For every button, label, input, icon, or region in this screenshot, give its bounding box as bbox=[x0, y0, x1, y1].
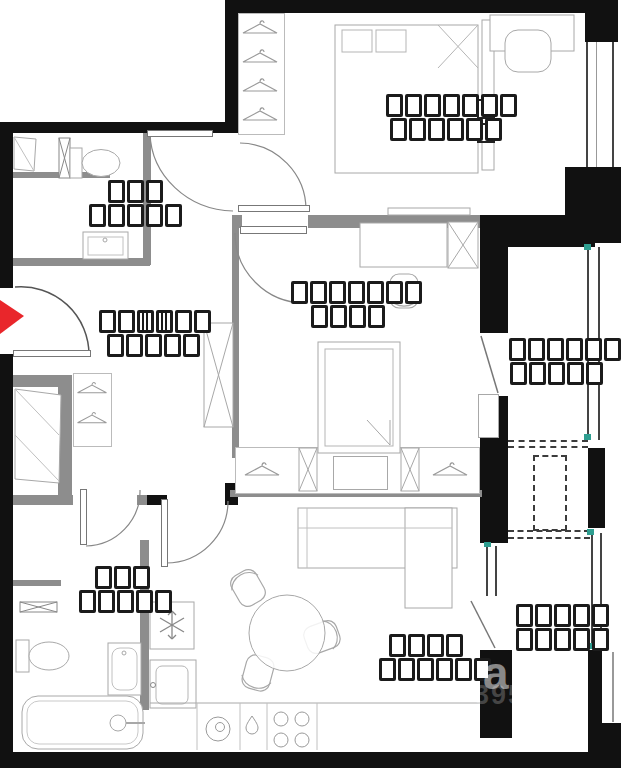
toilet-cistern bbox=[70, 148, 82, 178]
label-box-glyph bbox=[310, 281, 327, 304]
door-leaf-bathroom2 bbox=[80, 489, 87, 545]
label-box-glyph bbox=[194, 310, 211, 333]
label-box-glyph bbox=[79, 590, 96, 613]
pouf bbox=[505, 30, 551, 72]
hanger-icon bbox=[75, 410, 115, 430]
door-arc-bathroom2 bbox=[85, 489, 143, 549]
door-arc-hall-nook bbox=[238, 141, 308, 213]
label-box-glyph bbox=[427, 634, 444, 657]
window-living-loggia bbox=[486, 546, 497, 596]
label-box-glyph bbox=[368, 305, 385, 328]
washing-machine-drum-icon bbox=[206, 717, 230, 741]
label-box-glyph bbox=[585, 338, 602, 361]
window-tick-2 bbox=[584, 434, 591, 440]
label-box-glyph bbox=[485, 118, 502, 141]
label-box-glyph bbox=[466, 118, 483, 141]
partition-bath2-inner bbox=[13, 580, 61, 586]
label-box-glyph bbox=[417, 658, 434, 681]
room-label-bathroom-bottom bbox=[78, 566, 166, 614]
label-box-glyph bbox=[146, 204, 163, 227]
label-box-glyph bbox=[573, 604, 590, 627]
label-box-glyph bbox=[107, 334, 124, 357]
nightstand bbox=[333, 456, 388, 490]
window-tick-3 bbox=[587, 529, 594, 535]
label-box-glyph bbox=[118, 310, 135, 333]
window-tick-5 bbox=[484, 542, 491, 547]
label-box-glyph bbox=[133, 566, 150, 589]
label-box-glyph bbox=[95, 566, 112, 589]
hanger-icon bbox=[75, 380, 115, 400]
toilet-cistern bbox=[16, 640, 29, 672]
label-box-glyph bbox=[348, 281, 365, 304]
label-box-glyph bbox=[405, 281, 422, 304]
slab-edge-line bbox=[612, 652, 614, 722]
closet-xbox bbox=[400, 447, 420, 492]
label-box-glyph bbox=[516, 628, 533, 651]
hanger-icon bbox=[242, 460, 284, 480]
loggia-divider-dashed bbox=[508, 530, 590, 532]
faucet-drop-icon bbox=[246, 716, 258, 734]
sofa bbox=[295, 505, 460, 610]
pillow bbox=[376, 30, 406, 52]
label-box-glyph bbox=[329, 281, 346, 304]
label-box-glyph bbox=[554, 604, 571, 627]
label-box-glyph bbox=[136, 590, 153, 613]
wall-bottom-right-block bbox=[588, 723, 621, 753]
label-box-glyph bbox=[509, 338, 526, 361]
label-box-glyph bbox=[108, 204, 125, 227]
door-leaf-hall-nook bbox=[238, 205, 310, 212]
loggia-divider-dashed bbox=[508, 537, 590, 539]
label-box-glyph bbox=[127, 204, 144, 227]
toilet-bowl bbox=[29, 642, 69, 670]
room-label-bedroom-mid bbox=[290, 281, 405, 329]
stove-burners-icon bbox=[274, 712, 309, 747]
door-leaf-wc-top bbox=[147, 130, 213, 137]
niche-mirror-doors bbox=[13, 383, 75, 491]
bath-faucet bbox=[110, 715, 126, 731]
label-box-glyph bbox=[175, 310, 192, 333]
label-box-glyph bbox=[311, 305, 328, 328]
wall-left-upper bbox=[0, 122, 13, 288]
label-box-glyph bbox=[114, 566, 131, 589]
tv bbox=[388, 208, 470, 215]
pillow bbox=[342, 30, 372, 52]
window-tick-1 bbox=[584, 244, 591, 250]
room-label-kitchen-living bbox=[378, 634, 474, 682]
closet-hangers bbox=[240, 16, 282, 132]
bedroom2-furniture bbox=[315, 215, 485, 460]
door-leaf-entry bbox=[13, 350, 91, 357]
label-box-glyph bbox=[566, 338, 583, 361]
label-box-glyph bbox=[183, 334, 200, 357]
label-box-glyph bbox=[89, 204, 106, 227]
label-box-glyph bbox=[529, 362, 546, 385]
label-box-glyph bbox=[127, 180, 144, 203]
label-box-glyph bbox=[108, 180, 125, 203]
label-box-glyph bbox=[386, 94, 403, 117]
label-box-glyph bbox=[573, 628, 590, 651]
floor-plan: а 395 bbox=[0, 0, 621, 768]
label-box-glyph bbox=[436, 658, 453, 681]
loggia-storage-dashed bbox=[533, 455, 567, 531]
label-box-glyph bbox=[500, 94, 517, 117]
label-box-glyph bbox=[528, 338, 545, 361]
label-box-glyph bbox=[510, 362, 527, 385]
toilet-bowl bbox=[82, 150, 120, 177]
label-box-glyph bbox=[481, 94, 498, 117]
label-box-glyph bbox=[428, 118, 445, 141]
label-box-glyph bbox=[389, 634, 406, 657]
label-box-glyph bbox=[592, 628, 609, 651]
label-box-glyph bbox=[408, 634, 425, 657]
room-label-wc-top bbox=[88, 180, 183, 228]
label-box-glyph bbox=[592, 604, 609, 627]
label-box-glyph bbox=[98, 590, 115, 613]
label-box-glyph bbox=[443, 94, 460, 117]
label-box-glyph bbox=[554, 628, 571, 651]
loggia-shelf bbox=[478, 394, 499, 438]
label-box-glyph bbox=[386, 281, 403, 304]
label-box-glyph bbox=[548, 362, 565, 385]
label-box-glyph bbox=[567, 362, 584, 385]
label-box-glyph bbox=[535, 628, 552, 651]
label-box-glyph bbox=[156, 310, 173, 333]
watermark-digits: 395 bbox=[474, 680, 525, 711]
room-label-bedroom-top bbox=[385, 94, 507, 142]
label-box-glyph bbox=[330, 305, 347, 328]
label-box-glyph bbox=[455, 658, 472, 681]
label-box-glyph bbox=[409, 118, 426, 141]
room-label-loggia-top bbox=[508, 338, 604, 386]
label-box-glyph bbox=[547, 338, 564, 361]
label-box-glyph bbox=[586, 362, 603, 385]
label-box-glyph bbox=[137, 310, 154, 333]
entry-arrow-icon bbox=[0, 298, 28, 338]
wall-top-left-jog-v bbox=[225, 0, 238, 133]
closet-xbox bbox=[298, 447, 318, 492]
label-box-glyph bbox=[516, 604, 533, 627]
partition-bath2-top bbox=[13, 495, 73, 505]
label-box-glyph bbox=[424, 94, 441, 117]
label-box-glyph bbox=[390, 118, 407, 141]
loggia-divider-dashed bbox=[508, 446, 588, 448]
room-label-hallway bbox=[98, 310, 208, 358]
bathroom2-fixtures bbox=[13, 595, 148, 755]
label-box-glyph bbox=[145, 334, 162, 357]
label-box-glyph bbox=[604, 338, 621, 361]
label-box-glyph bbox=[146, 180, 163, 203]
label-box-glyph bbox=[117, 590, 134, 613]
hanger-icon bbox=[430, 460, 472, 480]
label-box-glyph bbox=[99, 310, 116, 333]
label-box-glyph bbox=[447, 118, 464, 141]
window-bedroom1-mullion bbox=[596, 42, 597, 167]
label-box-glyph bbox=[398, 658, 415, 681]
label-box-glyph bbox=[535, 604, 552, 627]
label-box-glyph bbox=[155, 590, 172, 613]
label-box-glyph bbox=[349, 305, 366, 328]
wall-loggia-pillar bbox=[588, 448, 605, 528]
label-box-glyph bbox=[367, 281, 384, 304]
label-box-glyph bbox=[405, 94, 422, 117]
label-box-glyph bbox=[462, 94, 479, 117]
room-label-loggia-bottom bbox=[514, 604, 610, 652]
label-box-glyph bbox=[291, 281, 308, 304]
door-leaf-bedroom2 bbox=[240, 226, 307, 234]
wall-left-lower bbox=[0, 354, 13, 768]
label-box-glyph bbox=[164, 334, 181, 357]
door-leaf-living bbox=[161, 499, 168, 567]
loggia-divider-dashed bbox=[508, 440, 588, 442]
label-box-glyph bbox=[165, 204, 182, 227]
desk bbox=[360, 223, 447, 267]
label-box-glyph bbox=[126, 334, 143, 357]
label-box-glyph bbox=[446, 634, 463, 657]
label-box-glyph bbox=[379, 658, 396, 681]
